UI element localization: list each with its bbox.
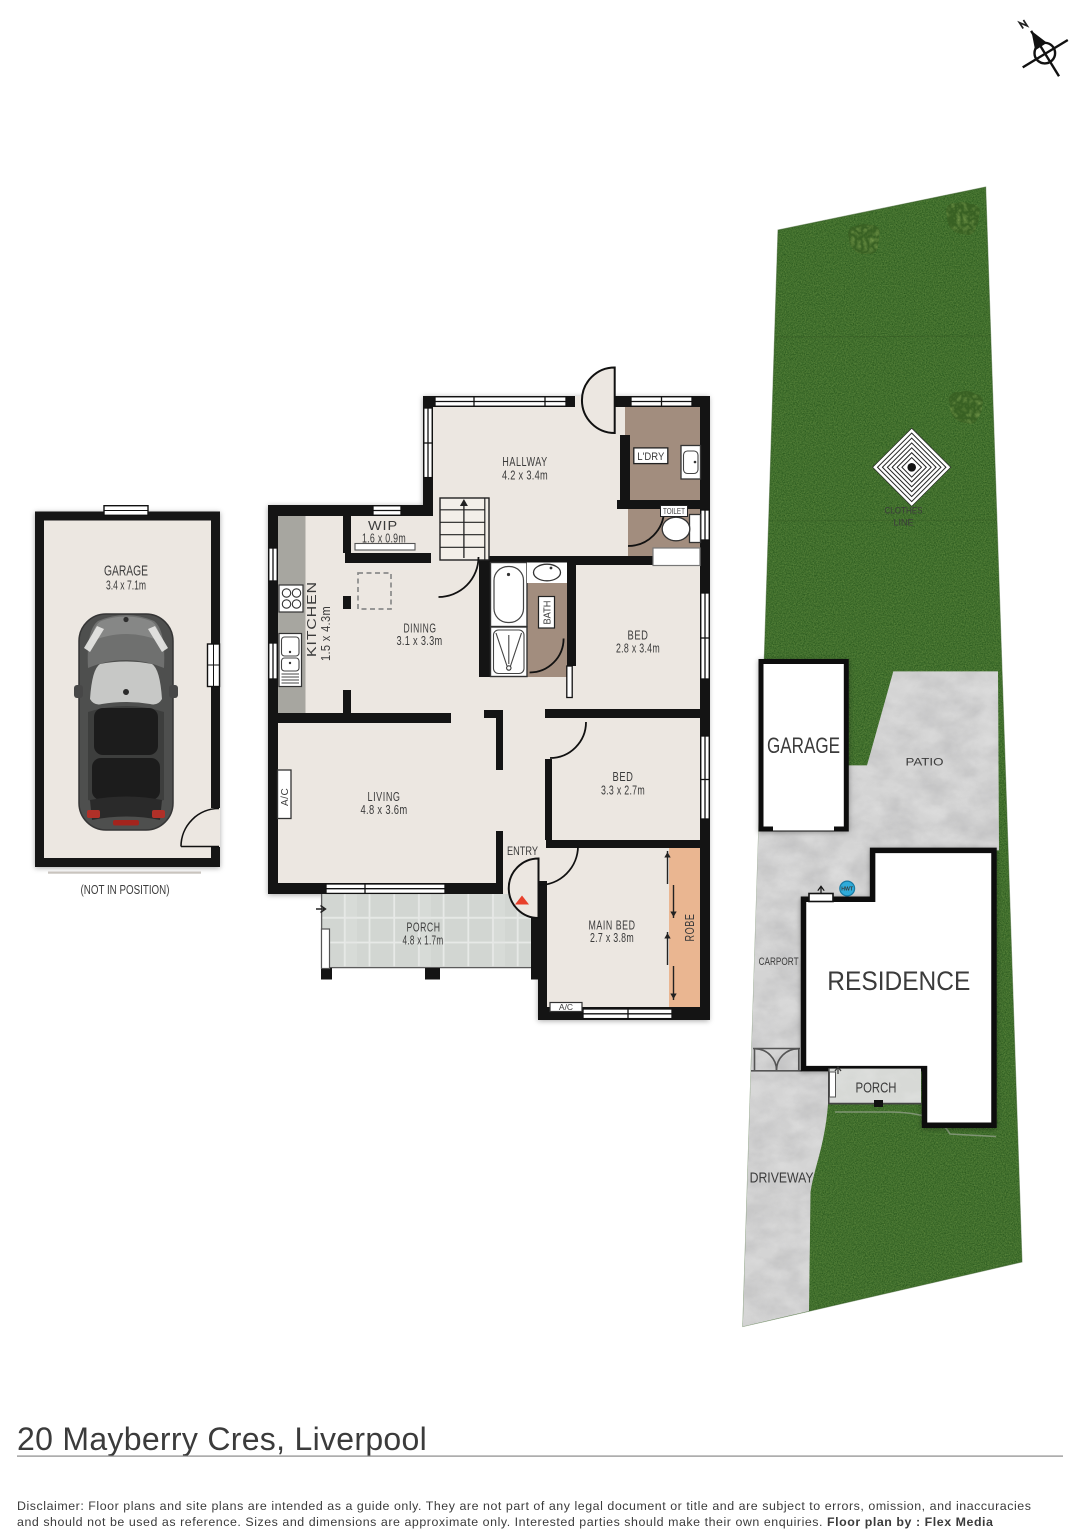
svg-text:ENTRY: ENTRY <box>507 846 538 858</box>
svg-text:BATH: BATH <box>542 601 554 625</box>
svg-text:BED: BED <box>613 769 634 784</box>
svg-text:A/C: A/C <box>280 788 291 806</box>
svg-text:and should not be used as refe: and should not be used as reference. Siz… <box>17 1515 994 1529</box>
svg-text:RESIDENCE: RESIDENCE <box>827 966 970 996</box>
svg-text:1.6 x 0.9m: 1.6 x 0.9m <box>362 532 406 546</box>
svg-text:2.8 x 3.4m: 2.8 x 3.4m <box>616 642 660 656</box>
svg-text:GARAGE: GARAGE <box>104 564 148 580</box>
svg-text:CARPORT: CARPORT <box>759 956 799 968</box>
svg-text:KITCHEN: KITCHEN <box>304 581 319 657</box>
svg-text:LIVING: LIVING <box>368 789 401 804</box>
svg-text:HALLWAY: HALLWAY <box>502 454 548 469</box>
svg-text:20 Mayberry Cres, Liverpool: 20 Mayberry Cres, Liverpool <box>17 1421 427 1457</box>
svg-text:3.3 x 2.7m: 3.3 x 2.7m <box>601 784 645 798</box>
svg-text:TOILET: TOILET <box>663 507 685 516</box>
svg-text:Disclaimer: Floor plans and si: Disclaimer: Floor plans and site plans a… <box>17 1499 1031 1513</box>
svg-text:PORCH: PORCH <box>407 920 441 935</box>
svg-text:DRIVEWAY: DRIVEWAY <box>750 1171 814 1187</box>
svg-text:ROBE: ROBE <box>682 914 697 942</box>
svg-text:L'DRY: L'DRY <box>637 451 665 463</box>
svg-text:3.1 x 3.3m: 3.1 x 3.3m <box>397 634 443 648</box>
svg-text:(NOT IN POSITION): (NOT IN POSITION) <box>81 883 170 897</box>
svg-text:1.5 x 4.3m: 1.5 x 4.3m <box>319 606 333 661</box>
svg-text:LINE: LINE <box>894 518 914 528</box>
svg-text:3.4 x 7.1m: 3.4 x 7.1m <box>106 579 146 593</box>
svg-text:GARAGE: GARAGE <box>767 733 840 758</box>
svg-text:BED: BED <box>628 628 649 643</box>
svg-text:PORCH: PORCH <box>856 1081 897 1097</box>
svg-text:PATIO: PATIO <box>906 757 945 769</box>
svg-text:A/C: A/C <box>559 1002 573 1012</box>
svg-text:HWT: HWT <box>841 887 854 893</box>
svg-text:CLOTHES: CLOTHES <box>885 506 923 516</box>
svg-text:4.8 x 1.7m: 4.8 x 1.7m <box>403 934 444 948</box>
svg-text:4.8 x 3.6m: 4.8 x 3.6m <box>361 803 408 817</box>
svg-text:2.7 x 3.8m: 2.7 x 3.8m <box>590 931 634 945</box>
svg-text:4.2 x 3.4m: 4.2 x 3.4m <box>502 469 548 483</box>
